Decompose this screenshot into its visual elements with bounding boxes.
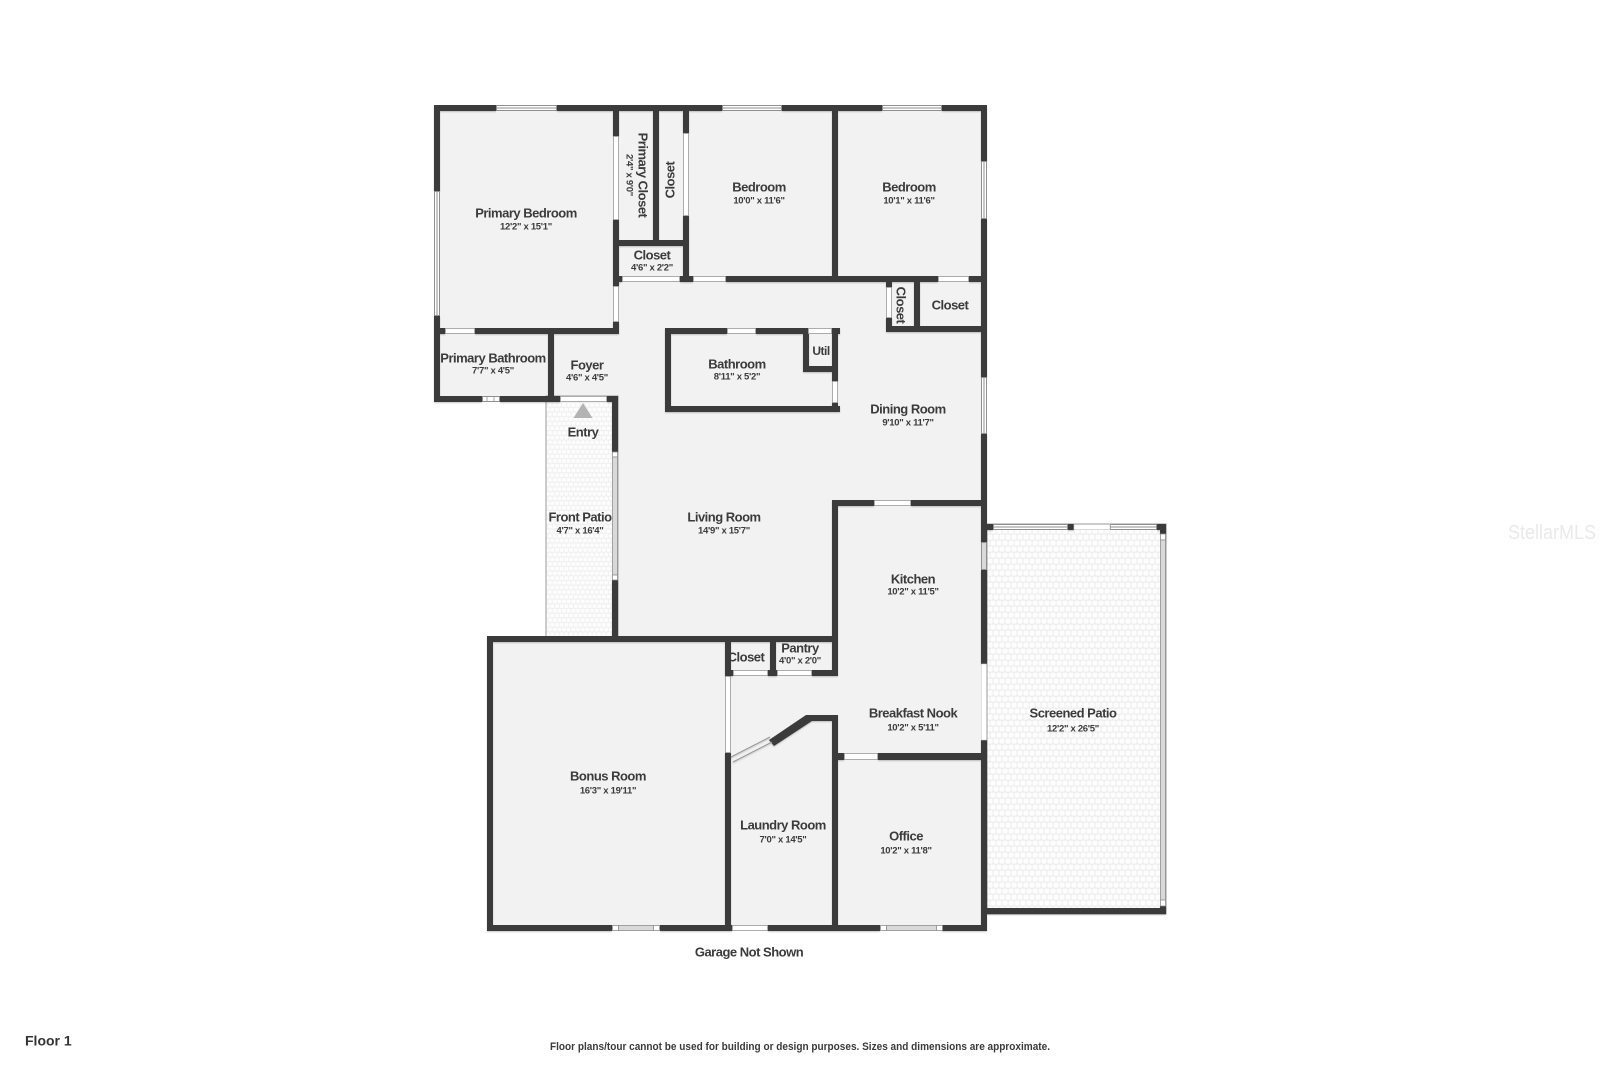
svg-text:Closet: Closet bbox=[728, 650, 766, 665]
svg-text:Closet: Closet bbox=[663, 160, 678, 198]
svg-text:7'0" x 14'5": 7'0" x 14'5" bbox=[760, 835, 807, 846]
svg-text:Closet: Closet bbox=[932, 298, 970, 313]
svg-text:Dining Room: Dining Room bbox=[870, 402, 945, 417]
svg-text:2'4" x 9'0": 2'4" x 9'0" bbox=[624, 154, 635, 196]
svg-text:4'6" x 2'2": 4'6" x 2'2" bbox=[631, 263, 673, 274]
svg-text:Office: Office bbox=[889, 829, 923, 844]
svg-text:Closet: Closet bbox=[894, 287, 909, 325]
svg-text:Pantry: Pantry bbox=[781, 641, 820, 656]
svg-text:8'11" x 5'2": 8'11" x 5'2" bbox=[714, 372, 760, 383]
svg-text:Garage Not Shown: Garage Not Shown bbox=[695, 945, 804, 960]
svg-text:Floor 1: Floor 1 bbox=[25, 1033, 72, 1049]
svg-text:Primary Bedroom: Primary Bedroom bbox=[475, 206, 577, 221]
svg-text:Bonus Room: Bonus Room bbox=[570, 769, 646, 784]
svg-text:10'1" x 11'6": 10'1" x 11'6" bbox=[883, 196, 934, 207]
svg-text:10'2" x 11'5": 10'2" x 11'5" bbox=[887, 587, 938, 598]
svg-text:7'7" x 4'5": 7'7" x 4'5" bbox=[472, 366, 514, 377]
svg-text:10'2" x 11'8": 10'2" x 11'8" bbox=[880, 846, 931, 857]
svg-text:Breakfast Nook: Breakfast Nook bbox=[869, 706, 959, 721]
svg-text:4'7" x 16'4": 4'7" x 16'4" bbox=[557, 526, 604, 537]
svg-text:Kitchen: Kitchen bbox=[891, 572, 936, 587]
svg-text:14'9" x 15'7": 14'9" x 15'7" bbox=[698, 526, 750, 537]
svg-text:Floor plans/tour cannot be use: Floor plans/tour cannot be used for buil… bbox=[550, 1041, 1050, 1053]
svg-text:Screened Patio: Screened Patio bbox=[1030, 706, 1117, 721]
svg-text:Bedroom: Bedroom bbox=[882, 180, 936, 195]
svg-text:4'0" x 2'0": 4'0" x 2'0" bbox=[779, 656, 821, 667]
svg-text:StellarMLS: StellarMLS bbox=[1508, 522, 1596, 544]
svg-text:Foyer: Foyer bbox=[571, 358, 604, 373]
svg-text:Front Patio: Front Patio bbox=[548, 510, 612, 525]
svg-text:Laundry Room: Laundry Room bbox=[740, 818, 826, 833]
svg-text:12'2" x 26'5": 12'2" x 26'5" bbox=[1047, 724, 1099, 735]
svg-text:Primary Bathroom: Primary Bathroom bbox=[440, 351, 545, 366]
svg-text:16'3" x 19'11": 16'3" x 19'11" bbox=[580, 786, 636, 797]
svg-text:10'2" x 5'11": 10'2" x 5'11" bbox=[887, 723, 938, 734]
svg-text:10'0" x 11'6": 10'0" x 11'6" bbox=[733, 196, 784, 207]
svg-text:Living Room: Living Room bbox=[687, 510, 760, 525]
svg-text:9'10" x 11'7": 9'10" x 11'7" bbox=[882, 418, 933, 429]
svg-text:Closet: Closet bbox=[634, 248, 672, 263]
svg-text:Primary Closet: Primary Closet bbox=[636, 133, 651, 219]
svg-text:4'6" x 4'5": 4'6" x 4'5" bbox=[566, 373, 608, 384]
svg-text:12'2" x 15'1": 12'2" x 15'1" bbox=[500, 222, 552, 233]
svg-text:Bedroom: Bedroom bbox=[732, 180, 786, 195]
svg-text:Util: Util bbox=[812, 344, 829, 358]
svg-text:Bathroom: Bathroom bbox=[708, 357, 765, 372]
svg-text:Entry: Entry bbox=[568, 425, 600, 440]
